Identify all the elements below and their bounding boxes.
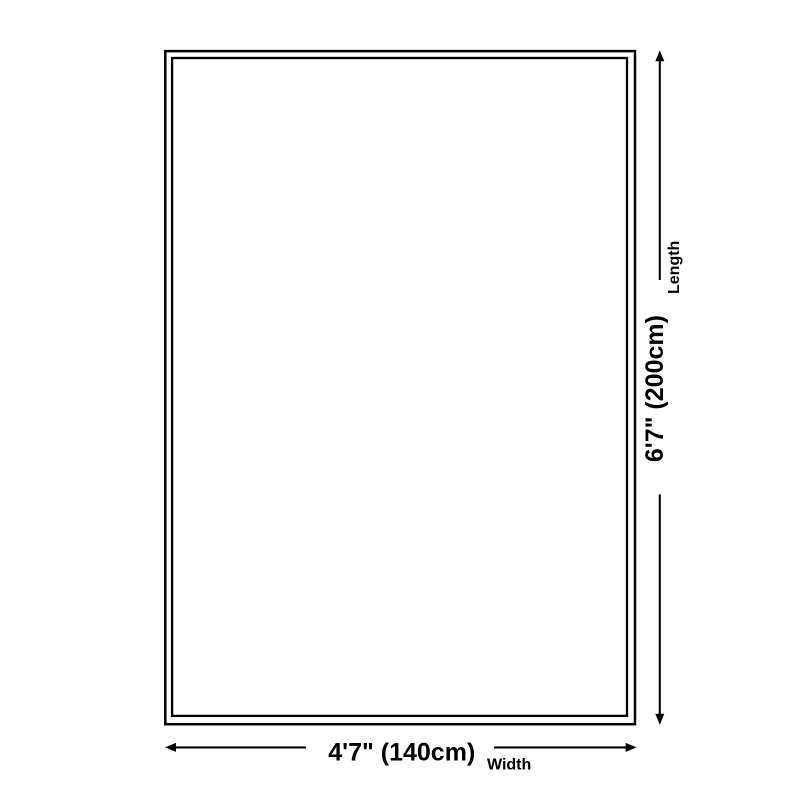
svg-text:4'7" (140cm): 4'7" (140cm) [328,739,475,767]
svg-text:Width: Width [487,757,531,774]
svg-text:6'7" (200cm): 6'7" (200cm) [641,315,669,462]
svg-text:Length: Length [666,241,683,294]
